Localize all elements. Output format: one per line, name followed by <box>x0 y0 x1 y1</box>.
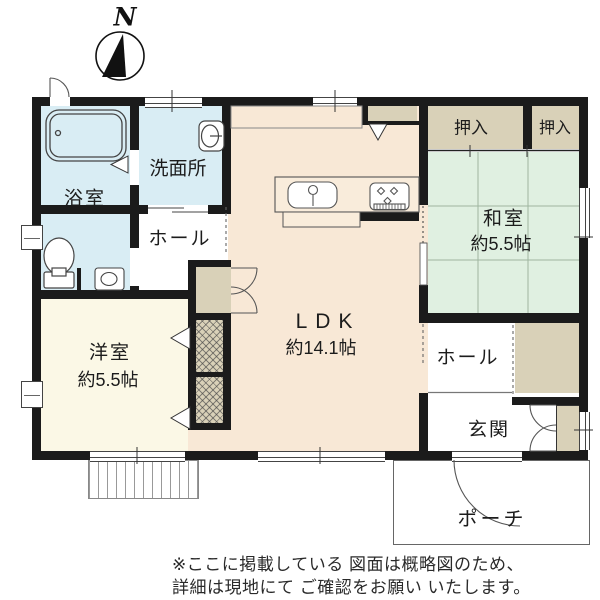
closet-western-2 <box>196 377 223 423</box>
wall <box>32 290 193 299</box>
wall <box>188 260 231 267</box>
oshiire-right-label: 押入 <box>539 114 571 138</box>
sliding-door <box>148 208 208 212</box>
hall-lower-label: ホール <box>436 343 499 370</box>
wall <box>419 393 428 451</box>
japanese-room-label: 和室 <box>483 204 525 231</box>
wall <box>419 106 428 205</box>
wall <box>130 214 139 248</box>
wall <box>366 121 419 125</box>
room-ldk <box>222 106 428 451</box>
entrance-label: 玄関 <box>468 415 510 442</box>
wall <box>523 106 532 149</box>
wall <box>579 97 588 460</box>
western-room-label: 洋室 <box>89 338 131 365</box>
oshiire-left-label: 押入 <box>454 114 488 139</box>
shoe-cabinet <box>556 405 581 453</box>
washroom-label: 洗面所 <box>149 154 206 181</box>
window <box>21 225 43 250</box>
wall <box>208 205 231 214</box>
room-ldk-corner <box>188 430 228 451</box>
wall <box>222 106 231 205</box>
wall <box>188 260 196 430</box>
closet-western-1 <box>196 320 223 372</box>
disclaimer-line1: ※ここに掲載している 図面は概略図のため、 <box>172 550 524 575</box>
hall-upper-label: ホール <box>148 224 211 251</box>
wall <box>32 97 588 106</box>
ldk-label: LDK <box>296 310 361 334</box>
north-arrow-icon <box>96 32 144 80</box>
floor-plan: N 浴室 洗面所 ホール 洋室 約5.5帖 LDK 約14.1帖 押入 押入 和… <box>0 0 600 600</box>
closet-hall-lower <box>515 323 579 397</box>
wall <box>130 106 139 150</box>
door-opening <box>50 97 70 106</box>
window <box>579 188 590 238</box>
closet-ldk-storage <box>196 267 231 313</box>
japanese-room-size: 約5.5帖 <box>470 230 531 256</box>
wall <box>77 268 81 290</box>
entrance-door-opening <box>452 451 522 462</box>
window <box>313 97 357 108</box>
window <box>21 381 43 408</box>
wall <box>512 397 579 405</box>
wall <box>419 313 588 323</box>
window <box>90 451 185 462</box>
bathroom-label: 浴室 <box>64 184 106 211</box>
window <box>579 412 590 450</box>
western-room-size: 約5.5帖 <box>77 366 138 392</box>
wood-deck <box>88 460 199 499</box>
wall <box>193 372 223 377</box>
window <box>145 97 202 108</box>
porch-label: ポーチ <box>458 503 527 532</box>
window <box>258 451 385 462</box>
wall <box>223 313 231 430</box>
ldk-size: 約14.1帖 <box>285 334 356 360</box>
disclaimer-line2: 詳細は現地にて ご確認をお願い いたします。 <box>172 573 531 598</box>
wall <box>358 212 419 221</box>
north-label: N <box>114 3 137 32</box>
room-toilet <box>41 214 130 290</box>
